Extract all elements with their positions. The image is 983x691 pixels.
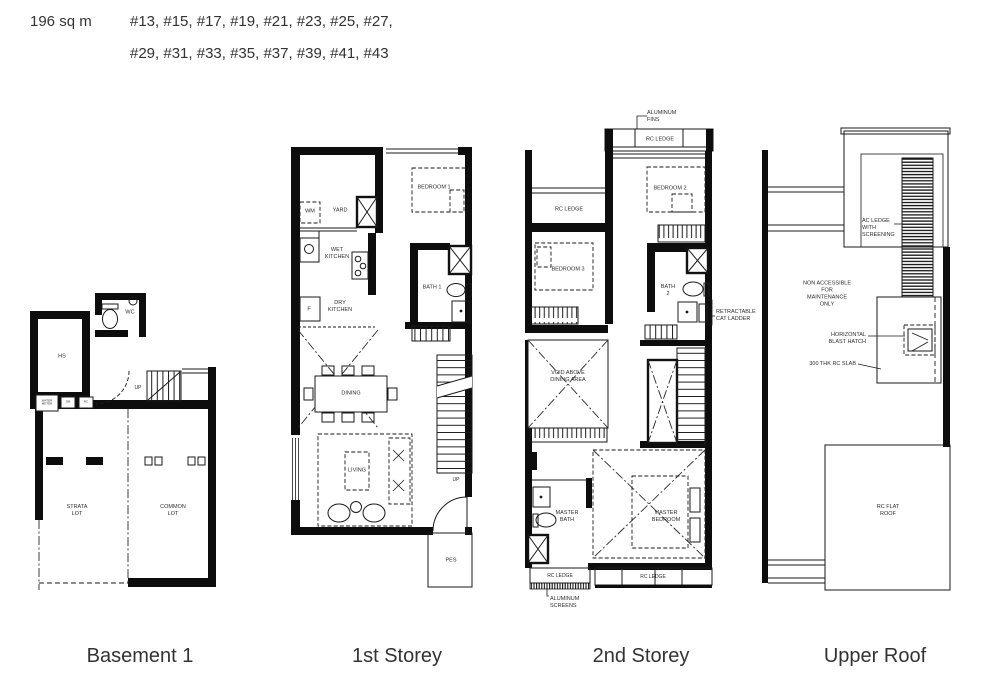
label-db: DB [66, 400, 70, 403]
caption-second-storey: 2nd Storey [593, 645, 690, 668]
room-label-common-lot: COMMON LOT [160, 504, 186, 518]
room-label-bath2: BATH 2 [660, 284, 676, 298]
first-storey-plan [291, 147, 472, 587]
unit-numbers-line1: #13, #15, #17, #19, #21, #23, #25, #27, [130, 13, 393, 30]
room-label-living: LIVING [348, 467, 366, 474]
stair-label-up-first: UP [453, 477, 460, 484]
unit-numbers-line2: #29, #31, #33, #35, #37, #39, #41, #43 [130, 45, 389, 62]
roof-bottom-ledge-lines [768, 560, 825, 583]
louvre-window-hall [530, 428, 607, 442]
stairs-upper [412, 326, 450, 341]
room-label-bedroom1: BEDROOM 1 [417, 184, 450, 191]
window-left [293, 438, 299, 500]
upper-roof-plan [762, 128, 950, 590]
stairs-main [437, 355, 472, 473]
label-non-accessible: NON ACCESSIBLE FOR MAINTENANCE ONLY [801, 281, 853, 310]
basement-stairs [147, 371, 181, 401]
master-bath-fixtures [528, 452, 586, 563]
label-rc-ledge-bottom: RC LEDGE [640, 574, 666, 581]
callout-cat-ladder: RETRACTABLE CAT LADDER [716, 309, 756, 323]
label-rc-ledge-bottom-left: RC LEDGE [547, 573, 573, 580]
room-label-master-bedroom: MASTER BEDROOM [651, 510, 681, 524]
caption-basement: Basement 1 [87, 645, 194, 668]
sofa-group [318, 434, 412, 526]
label-void-above-dining: VOID ABOVE DINING AREA [548, 370, 588, 384]
entry-door [433, 497, 467, 531]
bath1-shower [449, 246, 471, 274]
blast-hatch-slab [877, 297, 941, 383]
room-label-dry-kitchen: DRY KITCHEN [327, 300, 353, 314]
callout-aluminum-fins: ALUMINUM FINS [647, 110, 677, 124]
label-wm: WM [305, 208, 315, 215]
room-label-bedroom2: BEDROOM 2 [653, 185, 686, 192]
caption-first-storey: 1st Storey [352, 645, 442, 668]
cat-ladder [706, 300, 712, 325]
parking-bumpers [46, 457, 205, 465]
callout-blast-hatch: HORIZONTAL BLAST HATCH [814, 332, 866, 346]
stair-shaft [648, 360, 677, 443]
lot-boundary-line [39, 409, 128, 590]
callout-rc-slab: 300 THK RC SLAB [796, 361, 856, 368]
room-label-hs: HS [58, 353, 66, 360]
roof-stair-box [841, 128, 950, 247]
room-label-strata-lot: STRATA LOT [66, 504, 88, 518]
room-label-wc: WC [125, 309, 134, 316]
roof-ledge-lines [768, 187, 844, 231]
label-rc-flat-roof: RC FLAT ROOF [875, 504, 901, 518]
window-top [386, 149, 458, 153]
stove [352, 252, 368, 279]
stair-label-up-basement: UP [135, 385, 142, 392]
label-rc: RC [84, 400, 88, 403]
label-rc-ledge-left: RC LEDGE [555, 206, 583, 213]
bath2-shower [687, 248, 708, 273]
label-rc-ledge-top: RC LEDGE [646, 136, 674, 143]
ac-shaft [357, 197, 377, 227]
callout-aluminum-screens: ALUMINUM SCREENS [550, 596, 582, 610]
floorplan-sheet: 196 sq m #13, #15, #17, #19, #21, #23, #… [0, 0, 983, 691]
kitchen-sink [300, 238, 319, 262]
room-label-yard: YARD [333, 207, 348, 214]
caption-upper-roof: Upper Roof [824, 645, 926, 668]
room-label-wet-kitchen: WET KITCHEN [324, 247, 350, 261]
basement-plan [30, 293, 216, 590]
label-water-meter: WATER METER [39, 400, 55, 407]
room-label-bedroom3: BEDROOM 3 [551, 266, 584, 273]
louvre-window-bedroom3 [531, 307, 578, 324]
basement-walls [30, 293, 216, 587]
label-fridge: F [307, 306, 310, 313]
area-label: 196 sq m [30, 13, 92, 30]
window-bedroom2-top [613, 154, 705, 158]
master-bedroom-area [593, 450, 705, 558]
room-label-bath1: BATH 1 [423, 284, 442, 291]
bath2-sink [678, 302, 707, 322]
rc-ledge-left-lines [532, 188, 605, 193]
basement-door-swing [96, 371, 129, 404]
louvre-window-bath2 [658, 225, 705, 242]
ac-ledge-screen-strip [902, 158, 933, 298]
callout-ac-ledge: AC LEDGE WITH SCREENING [862, 218, 894, 239]
room-label-pes: PES [445, 557, 456, 564]
room-label-dining: DINING [341, 390, 360, 397]
room-label-master-bath: MASTER BATH [555, 510, 579, 524]
